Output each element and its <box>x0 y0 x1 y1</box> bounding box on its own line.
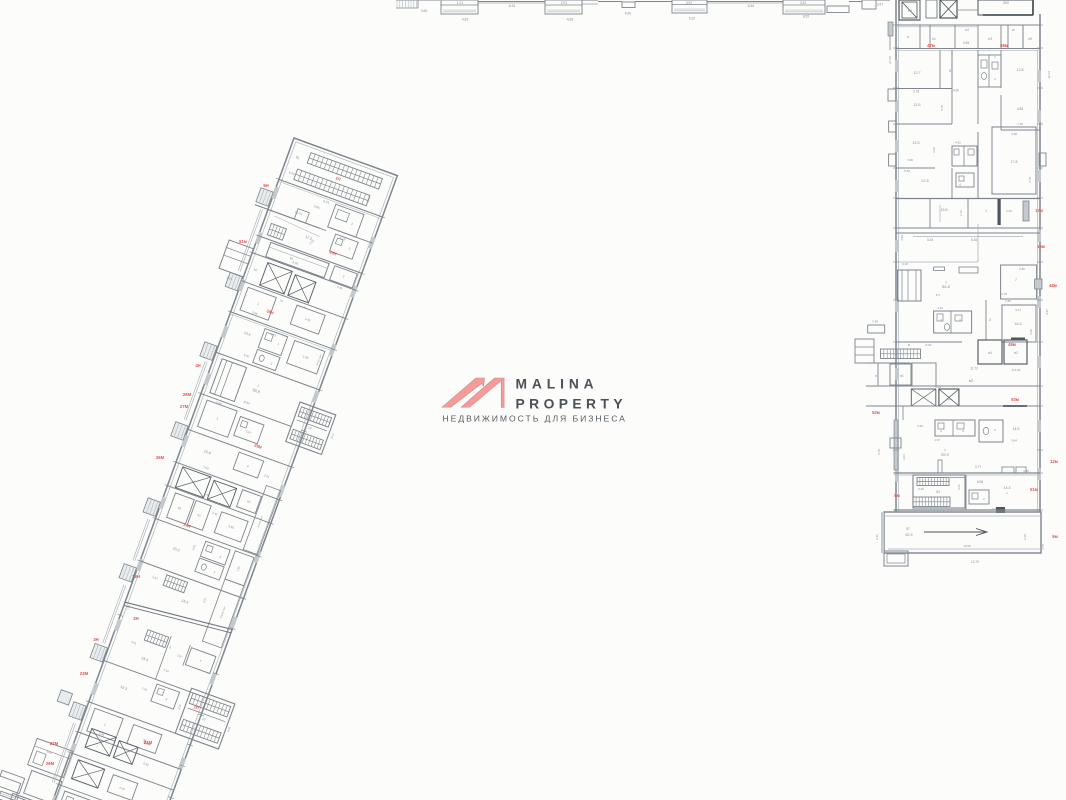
svg-text:5.78: 5.78 <box>940 105 944 111</box>
svg-text:в: в <box>875 374 877 378</box>
svg-text:e3: e3 <box>988 37 992 41</box>
svg-text:НЕДВИЖИМОСТЬ ДЛЯ БИЗНЕСА: НЕДВИЖИМОСТЬ ДЛЯ БИЗНЕСА <box>443 414 627 424</box>
svg-text:48м: 48м <box>1049 283 1057 288</box>
svg-text:э3: э3 <box>947 397 951 401</box>
svg-text:50м: 50м <box>1011 397 1019 402</box>
svg-text:3.92: 3.92 <box>686 1 692 5</box>
svg-text:4.17: 4.17 <box>1015 308 1021 312</box>
svg-text:85.8: 85.8 <box>942 284 951 289</box>
svg-text:1.21: 1.21 <box>457 1 463 5</box>
svg-text:3.79: 3.79 <box>1001 292 1007 296</box>
svg-text:62.9: 62.9 <box>906 533 913 537</box>
svg-text:27М: 27М <box>180 404 189 409</box>
svg-text:12.7: 12.7 <box>914 71 921 75</box>
svg-text:e2: e2 <box>908 9 912 13</box>
svg-text:12.5: 12.5 <box>913 141 920 145</box>
svg-text:8.55: 8.55 <box>803 15 809 19</box>
svg-text:12.8: 12.8 <box>1017 68 1024 72</box>
svg-text:5.98: 5.98 <box>977 480 983 484</box>
svg-text:7.36: 7.36 <box>1017 122 1023 126</box>
svg-text:1: 1 <box>985 209 987 213</box>
svg-text:5Н: 5Н <box>263 183 268 188</box>
svg-text:7: 7 <box>1015 278 1017 282</box>
svg-text:4Н: 4Н <box>195 363 200 368</box>
svg-text:4.56: 4.56 <box>963 41 969 45</box>
svg-text:3.76: 3.76 <box>913 90 919 94</box>
svg-text:6.79: 6.79 <box>877 449 881 455</box>
svg-text:12.5: 12.5 <box>914 103 921 107</box>
svg-text:2.80: 2.80 <box>1005 299 1011 303</box>
svg-text:3.18: 3.18 <box>902 262 908 266</box>
svg-text:e4: e4 <box>965 28 969 32</box>
svg-text:550: 550 <box>1003 1 1009 5</box>
svg-text:21М: 21М <box>144 740 153 745</box>
svg-text:MALINA: MALINA <box>516 376 599 391</box>
svg-text:3.01: 3.01 <box>902 454 906 460</box>
svg-text:2.80: 2.80 <box>1019 267 1025 271</box>
svg-text:3.57: 3.57 <box>877 3 883 7</box>
svg-text:2.72: 2.72 <box>959 210 963 216</box>
svg-text:6.34: 6.34 <box>509 4 516 8</box>
svg-text:3.06: 3.06 <box>932 147 936 153</box>
svg-text:54: 54 <box>936 490 940 494</box>
svg-text:57: 57 <box>906 527 910 531</box>
svg-text:8м: 8м <box>894 493 899 498</box>
svg-text:5.40: 5.40 <box>918 487 924 491</box>
svg-text:8: 8 <box>949 69 951 73</box>
svg-text:26М: 26М <box>156 455 165 460</box>
svg-text:3.60: 3.60 <box>421 9 428 13</box>
svg-text:23М: 23М <box>80 671 89 676</box>
svg-text:4.82: 4.82 <box>955 141 961 145</box>
svg-text:-0.93: -0.93 <box>925 343 932 347</box>
svg-text:48м: 48м <box>1000 43 1008 48</box>
svg-text:13.70: 13.70 <box>971 560 979 564</box>
svg-text:3.64: 3.64 <box>800 1 806 5</box>
svg-text:3.64: 3.64 <box>1011 439 1017 443</box>
svg-text:в1: в1 <box>900 374 904 378</box>
svg-text:5.38: 5.38 <box>971 238 977 242</box>
svg-text:PROPERTY: PROPERTY <box>516 397 628 412</box>
svg-text:4.37: 4.37 <box>934 438 940 442</box>
svg-text:18Н: 18Н <box>132 574 140 579</box>
svg-text:9.11: 9.11 <box>875 534 879 540</box>
svg-text:2Н: 2Н <box>133 616 138 621</box>
svg-text:8.40: 8.40 <box>625 12 632 16</box>
svg-text:15м: 15м <box>1037 244 1045 249</box>
svg-text:в4: в4 <box>988 351 992 355</box>
svg-text:9м: 9м <box>1052 534 1057 539</box>
svg-text:51м: 51м <box>1030 487 1038 492</box>
svg-text:55.9: 55.9 <box>941 453 948 457</box>
svg-text:4.90: 4.90 <box>953 89 959 93</box>
svg-text:27.60: 27.60 <box>888 56 892 64</box>
svg-text:4.88: 4.88 <box>1011 132 1017 136</box>
svg-text:4.69: 4.69 <box>567 18 574 22</box>
svg-text:47м: 47м <box>927 43 935 48</box>
svg-text:e5: e5 <box>1028 37 1032 41</box>
svg-text:15.8: 15.8 <box>941 208 948 212</box>
svg-text:4.02: 4.02 <box>935 385 941 389</box>
svg-text:51м: 51м <box>239 239 247 244</box>
svg-text:18: 18 <box>1011 28 1015 32</box>
svg-text:12м: 12м <box>1050 459 1058 464</box>
svg-text:5.22: 5.22 <box>689 17 696 21</box>
svg-text:8.7: 8.7 <box>936 293 941 297</box>
svg-text:11.72: 11.72 <box>970 367 978 371</box>
svg-text:6.54: 6.54 <box>748 4 755 8</box>
svg-text:3.96: 3.96 <box>907 158 913 162</box>
svg-text:2.35: 2.35 <box>1023 534 1027 540</box>
svg-text:22М: 22М <box>50 741 59 746</box>
svg-text:52м: 52м <box>872 410 880 415</box>
svg-text:3: 3 <box>989 318 991 322</box>
svg-text:17.8: 17.8 <box>1011 160 1018 164</box>
svg-text:4.75: 4.75 <box>1041 544 1045 550</box>
svg-text:в3: в3 <box>1014 351 1018 355</box>
svg-text:3.25: 3.25 <box>927 238 933 242</box>
svg-text:9.97: 9.97 <box>1045 309 1049 315</box>
svg-text:17м: 17м <box>1035 208 1043 213</box>
svg-text:7.79: 7.79 <box>1028 177 1032 183</box>
svg-text:2.21: 2.21 <box>957 484 961 490</box>
svg-text:6-4.20: 6-4.20 <box>1012 368 1021 372</box>
svg-text:14.3: 14.3 <box>1004 486 1011 490</box>
svg-text:3.38: 3.38 <box>872 320 878 324</box>
svg-text:49м: 49м <box>1008 342 1016 347</box>
svg-text:16.3: 16.3 <box>1015 322 1022 326</box>
svg-text:3.36: 3.36 <box>1029 329 1033 335</box>
svg-text:4.99: 4.99 <box>900 235 904 241</box>
svg-text:5.56: 5.56 <box>904 169 910 173</box>
svg-text:3.45: 3.45 <box>1023 469 1029 473</box>
svg-text:e: e <box>907 35 909 39</box>
svg-text:14.5: 14.5 <box>1013 427 1020 431</box>
svg-text:16.50: 16.50 <box>963 544 971 548</box>
svg-text:22.5: 22.5 <box>921 179 928 183</box>
svg-text:2.40: 2.40 <box>1006 209 1012 213</box>
svg-text:4.43: 4.43 <box>937 306 943 310</box>
svg-text:4: 4 <box>959 183 961 187</box>
svg-text:3.40: 3.40 <box>917 424 923 428</box>
svg-text:14.74: 14.74 <box>1047 71 1051 79</box>
svg-text:3Н: 3Н <box>93 637 98 642</box>
svg-text:2.91: 2.91 <box>561 1 567 5</box>
svg-text:4.63: 4.63 <box>462 18 469 22</box>
svg-text:4.88: 4.88 <box>1017 107 1023 111</box>
svg-text:e1: e1 <box>932 37 936 41</box>
svg-text:3.77: 3.77 <box>975 465 981 469</box>
svg-text:20М: 20М <box>46 761 55 766</box>
svg-text:в2: в2 <box>969 378 974 383</box>
svg-text:28М: 28М <box>183 392 192 397</box>
